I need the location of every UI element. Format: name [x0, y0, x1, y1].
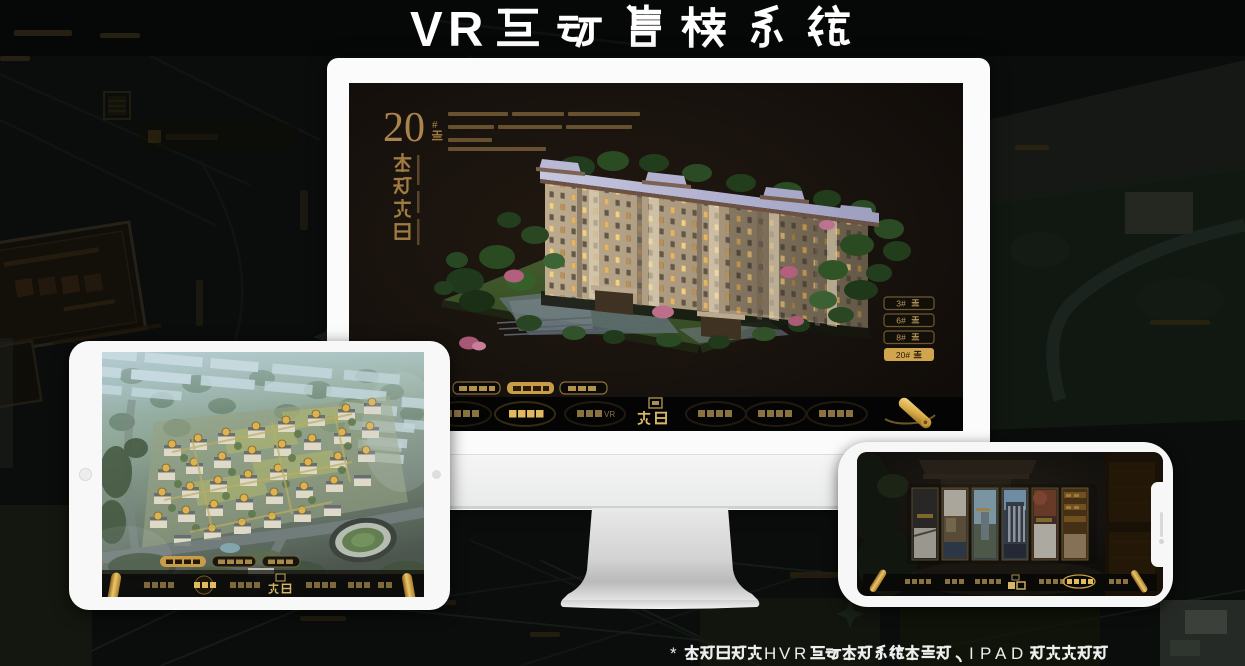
svg-text:V: V: [410, 3, 443, 57]
svg-text:R: R: [448, 3, 483, 57]
svg-text:6#: 6#: [896, 316, 906, 326]
svg-text:20: 20: [383, 105, 425, 151]
svg-text:P: P: [980, 644, 991, 663]
svg-text:*: *: [670, 644, 677, 663]
svg-text:H: H: [764, 644, 776, 663]
svg-text:A: A: [995, 644, 1007, 663]
svg-text:I: I: [969, 644, 974, 663]
svg-text:D: D: [1011, 644, 1023, 663]
svg-text:#: #: [432, 119, 438, 131]
svg-text:3#: 3#: [896, 299, 906, 309]
svg-text:V: V: [779, 644, 791, 663]
svg-text:VR: VR: [604, 410, 615, 419]
svg-text:R: R: [794, 644, 806, 663]
svg-text:20#: 20#: [896, 350, 910, 360]
svg-text:8#: 8#: [896, 333, 906, 343]
